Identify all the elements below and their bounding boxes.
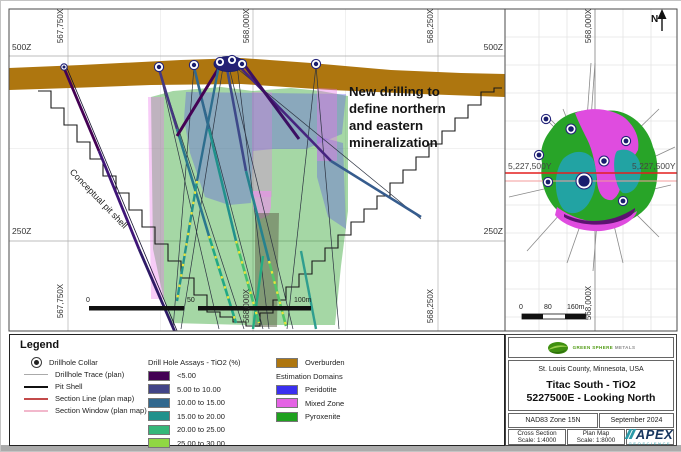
assay-swatch [148,438,170,448]
map-figure-page: 567,750X 568,000X 568,250X 567,750X 568,… [0,0,681,452]
apex-logo: APEX GEOSCIENCE [627,430,673,444]
domain-swatch [276,412,298,422]
section-title: 5227500E - Looking North [509,392,673,404]
north-label: N [651,14,658,25]
assay-swatch [148,371,170,381]
legend-item-trace: Drillhole Trace (plan) [24,369,147,380]
domain-swatch [276,398,298,408]
legend-symbols: Drillhole Collar Drillhole Trace (plan) … [24,357,147,416]
elev-label-500z: 500Z [479,43,503,52]
company-logo-icon [547,341,569,355]
legend-item-sectionwindow: Section Window (plan map) [24,405,147,416]
assays-title: Drill Hole Assays - TiO2 (%) [148,357,241,368]
assay-swatch [148,425,170,435]
scale-tick: 100m [294,297,312,304]
plan-northing-label: 5,227,500Y [508,162,551,171]
legend-item-pitshell: Pit Shell [24,381,147,392]
legend-assays: Drill Hole Assays - TiO2 (%) <5.00 5.00 … [148,357,241,452]
elev-label-250z: 250Z [479,227,503,236]
axis-label-easting: 567,750X [56,3,66,49]
project-title: Titac South - TiO2 [509,379,673,391]
mixed-zone-domain [148,97,164,299]
plan-axis-label-easting: 568,000X [584,3,594,49]
date-cell: September 2024 [599,413,674,428]
assay-swatch [148,384,170,394]
legend-domains: Overburden Estimation Domains Peridotite… [276,357,345,422]
plan-scale-tick: 160m [567,304,585,311]
axis-label-easting: 568,250X [426,283,436,329]
scale-tick: 0 [86,297,90,304]
plan-map-scale-cell: Plan Map Scale: 1:8000 [567,429,625,445]
plan-scale-tick: 0 [519,304,523,311]
axis-label-easting: 568,000X [242,3,252,49]
legend-item-overburden: Overburden [276,357,345,368]
pit-shell-icon [24,386,48,388]
domains-title: Estimation Domains [276,371,345,382]
legend: Legend Drillhole Collar Drillhole Trace … [9,334,505,446]
plan-scale-bar [522,314,586,319]
domain-swatch [276,385,298,395]
overburden-swatch [276,358,298,368]
section-scale-bar [89,306,311,311]
plan-scale-tick: 80 [544,304,552,311]
axis-label-easting: 568,000X [242,283,252,329]
apex-logo-cell: APEX GEOSCIENCE [626,429,674,445]
plan-axis-label-easting: 568,000X [584,280,594,326]
plan-northing-label: 5,227,500Y [632,162,675,171]
datum-cell: NAD83 Zone 15N [508,413,598,428]
company-name: GREEN SPHERE METALS [573,345,636,350]
title-cell: St. Louis County, Minnesota, USA Titac S… [508,360,674,411]
elev-label-500z: 500Z [12,43,31,52]
scale-tick: 50 [187,297,195,304]
mixed-zone-domain [252,92,272,197]
annotation-text: New drilling to define northern and east… [349,83,446,151]
cross-section-scale-cell: Cross Section Scale: 1:4000 [508,429,566,445]
assay-swatch [148,398,170,408]
legend-item-sectionline: Section Line (plan map) [24,393,147,404]
drillhole-collar-icon [31,357,42,368]
company-logo: GREEN SPHERE METALS [508,337,674,358]
north-arrow-icon [658,9,667,31]
axis-label-easting: 568,250X [426,3,436,49]
drillhole-trace-icon [24,374,48,375]
elev-label-250z: 250Z [12,227,31,236]
axis-label-easting: 567,750X [56,278,66,324]
section-line-icon [24,398,48,400]
project-location: St. Louis County, Minnesota, USA [509,366,673,373]
title-block: GREEN SPHERE METALS St. Louis County, Mi… [505,334,677,446]
apex-subtitle: GEOSCIENCE [629,441,672,446]
assay-swatch [148,411,170,421]
legend-item-collar: Drillhole Collar [24,357,147,368]
legend-title: Legend [20,339,59,351]
section-window-icon [24,410,48,412]
